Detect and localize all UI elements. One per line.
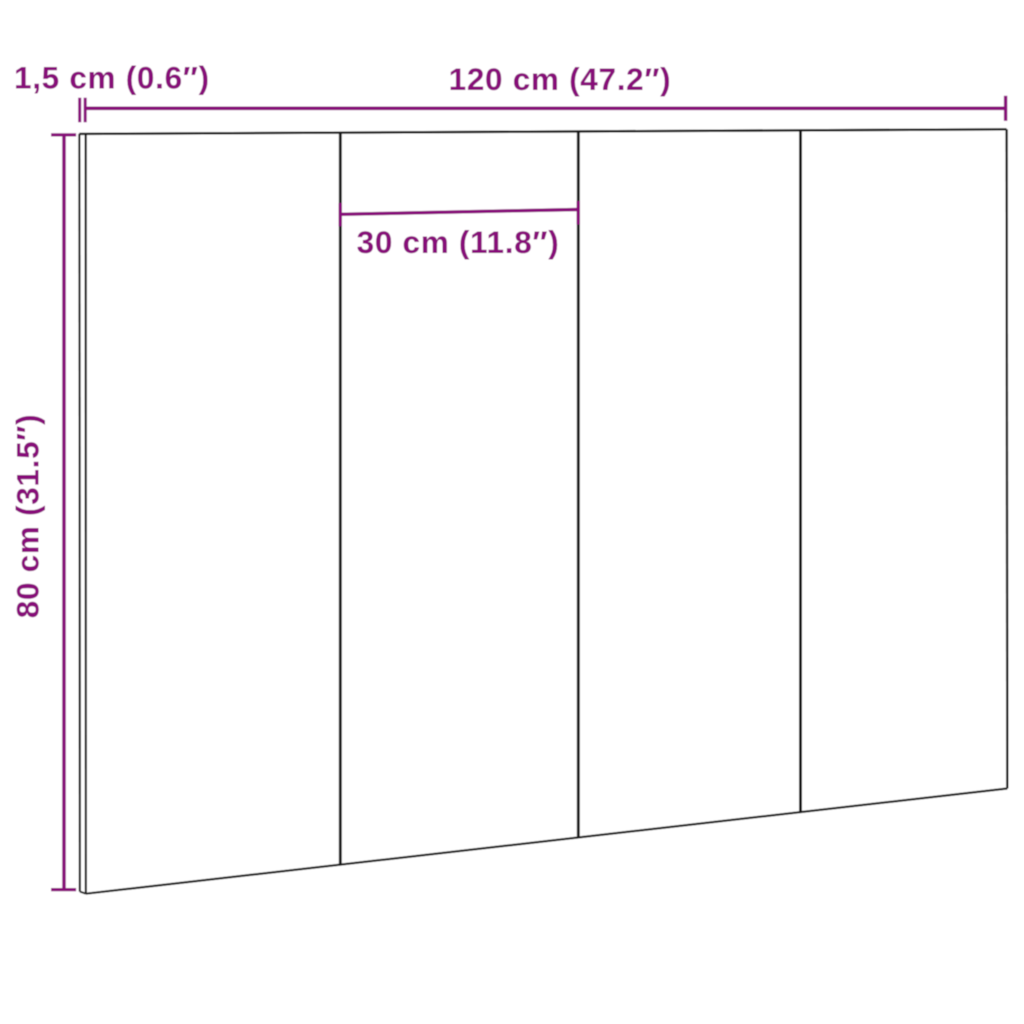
svg-text:30 cm (11.8″): 30 cm (11.8″) bbox=[357, 224, 560, 260]
svg-text:120 cm (47.2″): 120 cm (47.2″) bbox=[449, 61, 672, 97]
svg-text:1,5 cm (0.6″): 1,5 cm (0.6″) bbox=[14, 60, 210, 96]
svg-text:80 cm (31.5″): 80 cm (31.5″) bbox=[10, 414, 46, 619]
